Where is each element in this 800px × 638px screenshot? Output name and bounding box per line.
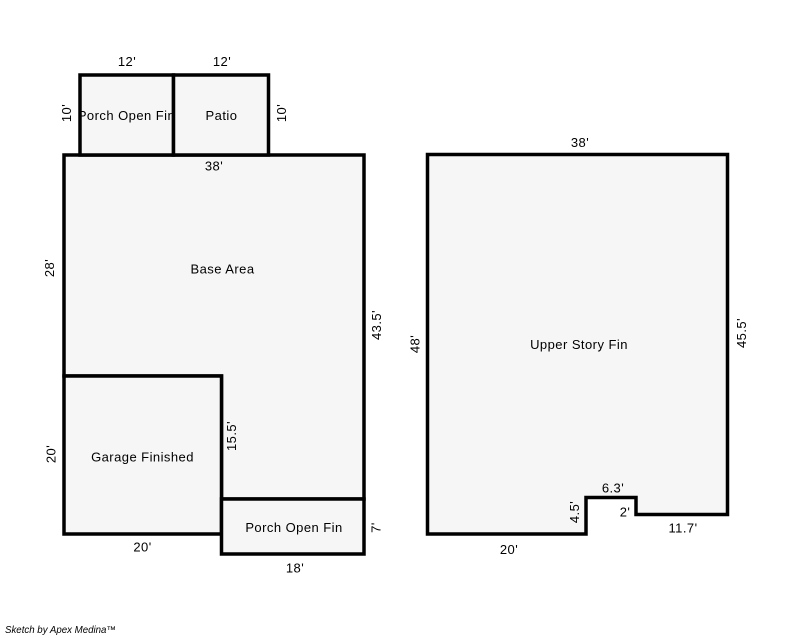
svg-text:45.5': 45.5' [734,318,749,348]
svg-text:43.5': 43.5' [369,310,384,340]
svg-text:Patio: Patio [206,108,238,123]
svg-text:Sketch by Apex Medina™: Sketch by Apex Medina™ [5,625,116,636]
svg-text:Porch Open Fin: Porch Open Fin [78,108,175,123]
svg-text:20': 20' [44,445,59,463]
svg-text:Base Area: Base Area [190,262,254,277]
svg-text:10': 10' [59,104,74,122]
svg-text:12': 12' [213,54,231,69]
svg-text:11.7': 11.7' [668,521,697,536]
svg-text:6.3': 6.3' [602,481,624,496]
svg-text:38': 38' [205,159,223,174]
svg-text:38': 38' [571,135,589,150]
svg-text:10': 10' [274,104,289,122]
svg-text:7': 7' [369,522,384,533]
svg-text:28': 28' [42,259,57,277]
svg-text:20': 20' [133,540,151,555]
svg-text:Garage Finished: Garage Finished [91,450,194,465]
svg-text:4.5': 4.5' [567,501,582,523]
svg-text:12': 12' [118,54,136,69]
svg-text:18': 18' [286,561,304,576]
svg-text:15.5': 15.5' [224,421,239,451]
svg-text:2': 2' [620,505,631,520]
svg-text:Upper Story Fin: Upper Story Fin [530,337,628,352]
svg-text:48': 48' [407,335,422,353]
svg-text:20': 20' [500,542,518,557]
svg-text:Porch Open Fin: Porch Open Fin [245,520,342,535]
